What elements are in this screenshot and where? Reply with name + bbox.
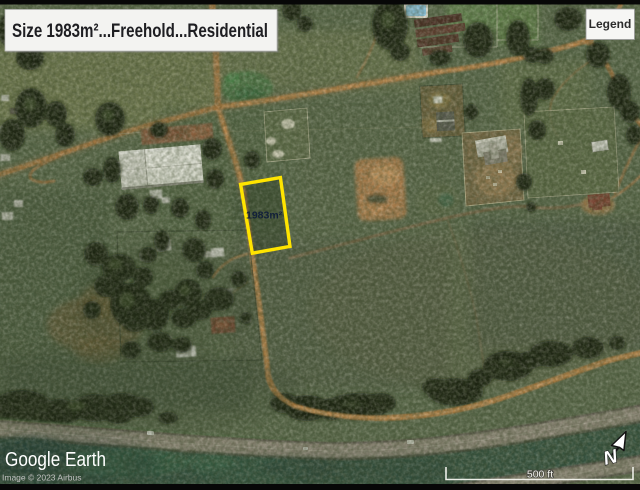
svg-text:Legend: Legend <box>589 17 632 31</box>
svg-text:1983m²: 1983m² <box>246 210 283 222</box>
svg-text:500 ft: 500 ft <box>527 469 553 481</box>
svg-text:Image © 2023 Airbus: Image © 2023 Airbus <box>2 473 82 483</box>
svg-text:Size 1983m²...Freehold...Resid: Size 1983m²...Freehold...Residential <box>12 20 268 42</box>
svg-text:Google Earth: Google Earth <box>5 449 106 471</box>
